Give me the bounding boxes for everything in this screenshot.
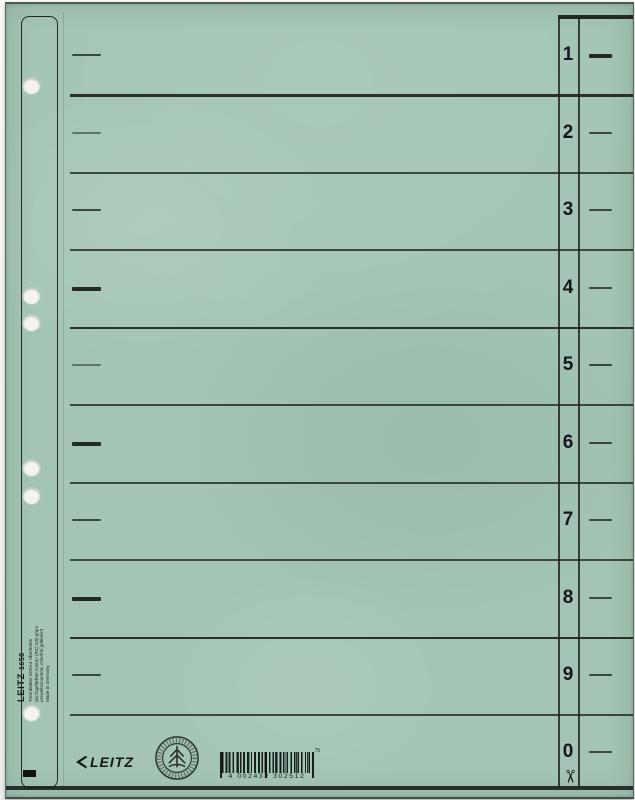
left-writing-dash — [72, 54, 101, 56]
margin-crease-line — [63, 12, 64, 788]
tab-number: 6 — [556, 432, 580, 454]
left-writing-dash — [72, 442, 101, 446]
right-writing-dash — [589, 751, 612, 753]
printed-layer: LEITZ 1658 Trennblätter DIN A4 Überbreit… — [6, 4, 633, 797]
tab-number: 7 — [556, 509, 580, 531]
bottom-border-line — [6, 786, 633, 790]
imprint-brand: LEITZ 1658 — [16, 576, 27, 702]
punch-hole — [23, 288, 40, 304]
left-writing-dash — [72, 364, 101, 366]
imprint-brand-text: LEITZ — [16, 673, 27, 702]
separator-line — [70, 404, 633, 406]
spine-imprint: LEITZ 1658 Trennblätter DIN A4 Überbreit… — [16, 576, 53, 702]
separator-line — [70, 482, 633, 484]
barcode-bars — [222, 752, 312, 773]
separator-line — [70, 327, 633, 330]
divider-sheet: LEITZ 1658 Trennblätter DIN A4 Überbreit… — [5, 2, 634, 799]
right-writing-dash — [589, 442, 612, 444]
barcode-digits: 4 002432 302512 — [218, 773, 316, 780]
bottom-black-mark — [23, 770, 36, 777]
punch-hole — [23, 488, 40, 504]
scissors-icon: ✂ — [559, 769, 580, 784]
left-writing-dash — [72, 597, 101, 601]
imprint-details: Trennblätter DIN A4 Überbreitedurchgefär… — [28, 576, 50, 702]
leitz-logo-text: LEITZ — [90, 754, 134, 770]
separator-line — [70, 637, 633, 640]
tab-column-top-border — [558, 15, 633, 19]
punch-hole — [23, 315, 40, 331]
punch-hole — [23, 78, 40, 94]
tab-number: 9 — [556, 664, 580, 686]
recycled-paper-seal-icon — [154, 735, 200, 781]
separator-line — [70, 714, 633, 716]
right-writing-dash — [589, 674, 612, 676]
leitz-arrow-icon — [76, 756, 87, 769]
right-writing-dash — [589, 597, 612, 599]
barcode-corner-mark: 75 — [314, 748, 320, 754]
imprint-model-number: 1658 — [19, 652, 26, 670]
punch-hole — [23, 460, 40, 476]
left-writing-dash — [72, 674, 101, 676]
tab-number: 4 — [556, 277, 580, 299]
right-writing-dash — [589, 519, 612, 521]
tab-number: 3 — [556, 199, 580, 221]
left-writing-dash — [72, 209, 101, 211]
tab-number: 1 — [556, 44, 580, 66]
left-writing-dash — [72, 287, 101, 291]
imprint-detail-line: Made in Germany — [45, 576, 51, 702]
left-writing-dash — [72, 519, 101, 521]
right-writing-dash — [589, 54, 612, 58]
left-writing-dash — [72, 132, 101, 134]
separator-line — [70, 559, 633, 561]
tab-number: 5 — [556, 354, 580, 376]
punch-hole — [23, 705, 40, 721]
separator-line — [70, 249, 633, 251]
separator-line — [70, 172, 633, 174]
tab-number: 2 — [556, 122, 580, 144]
right-writing-dash — [589, 287, 612, 289]
product-photo: LEITZ 1658 Trennblätter DIN A4 Überbreit… — [0, 0, 635, 800]
tab-number: 8 — [556, 587, 580, 609]
tab-number: 0 — [556, 741, 580, 763]
right-writing-dash — [589, 364, 612, 366]
leitz-logo: LEITZ — [76, 753, 134, 771]
right-writing-dash — [589, 209, 612, 211]
barcode: 4 002432 302512 75 — [218, 751, 316, 782]
right-writing-dash — [589, 132, 612, 134]
separator-line — [70, 94, 633, 97]
